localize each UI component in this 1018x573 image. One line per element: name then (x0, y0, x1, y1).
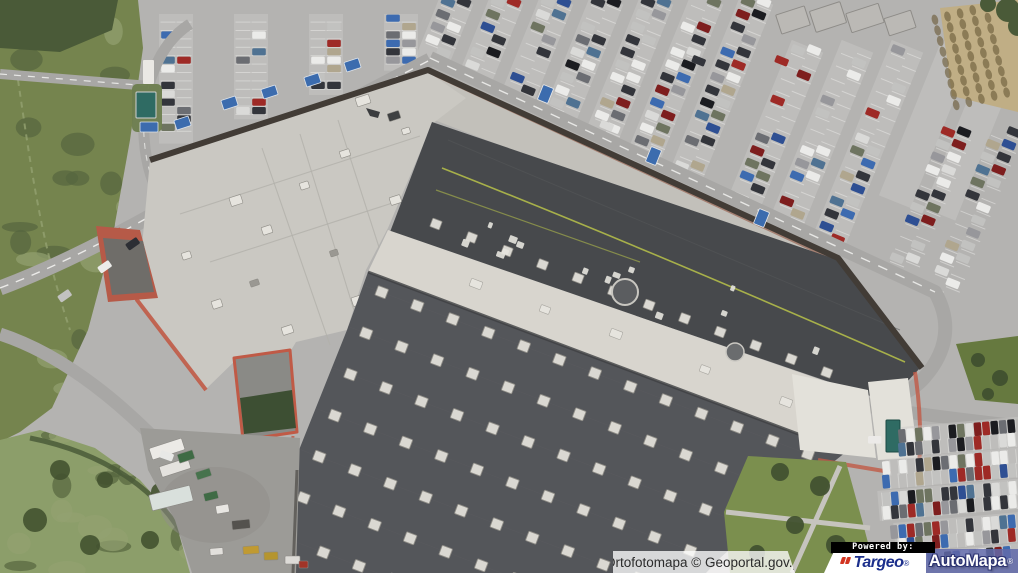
parked-car (958, 485, 967, 499)
parked-car (923, 522, 932, 536)
stall-line (327, 80, 342, 81)
parked-car (932, 456, 941, 470)
parked-car (386, 40, 400, 47)
parked-car (965, 423, 974, 437)
parked-car (1008, 494, 1017, 508)
stall-line (177, 89, 192, 90)
parked-car (965, 532, 974, 546)
parked-car (327, 48, 341, 55)
grass-blob (4, 561, 36, 571)
tree (982, 388, 994, 400)
parked-car (907, 503, 916, 517)
parked-car (402, 40, 416, 47)
parked-car (915, 523, 924, 537)
parked-car (1007, 528, 1016, 542)
stall-line (177, 72, 192, 73)
parked-car (999, 450, 1008, 464)
parked-car (252, 99, 266, 106)
parked-car (948, 424, 957, 438)
parked-car (891, 505, 900, 519)
roof-vent-circle (612, 279, 638, 305)
attribution-text: Ortofotomapa © Geoportal.gov.pl (605, 555, 803, 570)
parked-car (966, 467, 975, 481)
tree (771, 463, 789, 481)
parked-car (982, 517, 991, 531)
stall-line (252, 22, 267, 23)
car-on-road (868, 436, 881, 444)
parked-car (966, 485, 975, 499)
stall-line (252, 64, 267, 65)
parked-car (402, 48, 416, 55)
parked-car (915, 471, 924, 485)
parked-car (898, 524, 907, 538)
stall-line (236, 72, 251, 73)
parked-car (949, 533, 958, 547)
stall-line (252, 80, 267, 81)
parked-car (965, 518, 974, 532)
parked-car (177, 107, 191, 114)
entrance-canopy (886, 420, 900, 452)
parked-car (958, 499, 967, 513)
parked-car (327, 23, 341, 30)
stall-line (311, 55, 326, 56)
grass-blob (100, 171, 122, 195)
parked-car (983, 452, 992, 466)
parked-car (990, 421, 999, 435)
stall-line (252, 30, 267, 31)
grass-blob (7, 533, 31, 555)
stall-line (161, 114, 176, 115)
stall-line (161, 22, 176, 23)
tree (141, 531, 159, 549)
parked-car (899, 504, 908, 518)
parked-car (161, 124, 175, 131)
parked-car (327, 82, 341, 89)
parked-car (933, 501, 942, 515)
automapa-logo[interactable]: AutoMapa ® (924, 549, 1018, 573)
tree (971, 353, 985, 367)
parked-car (991, 496, 1000, 510)
parked-car (999, 464, 1008, 478)
parked-car (386, 57, 400, 64)
grass-blob (16, 117, 42, 137)
stall-line (402, 22, 417, 23)
stall-line (252, 72, 267, 73)
parked-car (941, 456, 950, 470)
yard-container (210, 548, 223, 556)
tree (50, 460, 70, 480)
parked-car (975, 484, 984, 498)
parked-car (999, 420, 1008, 434)
stall-line (236, 22, 251, 23)
parked-car (906, 428, 915, 442)
parked-car (916, 503, 925, 517)
powered-by-label: Powered by: (831, 542, 935, 553)
parked-car (899, 491, 908, 505)
parked-car (882, 492, 891, 506)
parked-car (327, 57, 341, 64)
stall-line (236, 89, 251, 90)
parked-car (931, 426, 940, 440)
parked-car (923, 427, 932, 441)
attribution-bar: Ortofotomapa © Geoportal.gov.pl (613, 551, 795, 573)
parked-car (386, 15, 400, 22)
stall-line (161, 80, 176, 81)
stall-line (236, 55, 251, 56)
parked-car (991, 516, 1000, 530)
parked-car (882, 506, 891, 520)
parked-car (890, 525, 899, 539)
parked-car (974, 453, 983, 467)
parked-car (402, 31, 416, 38)
targeo-logo[interactable]: Targeo ® (824, 553, 926, 573)
parked-car (999, 433, 1008, 447)
parked-car (957, 454, 966, 468)
parked-car (1007, 514, 1016, 528)
stall-line (311, 30, 326, 31)
parked-car (1008, 481, 1017, 495)
parked-car (991, 451, 1000, 465)
parked-car (161, 90, 175, 97)
parked-car (974, 531, 983, 545)
parked-car (177, 57, 191, 64)
parked-car (327, 40, 341, 47)
parked-car (940, 520, 949, 534)
parked-car (983, 483, 992, 497)
parked-car (899, 459, 908, 473)
parked-car (915, 441, 924, 455)
parked-car (1008, 463, 1017, 477)
parked-car (1000, 482, 1009, 496)
targeo-registered-mark: ® (903, 559, 909, 568)
parked-car (999, 515, 1008, 529)
stall-line (327, 38, 342, 39)
stall-line (386, 30, 401, 31)
yard-container (285, 556, 300, 564)
parked-car (932, 521, 941, 535)
parked-car (966, 453, 975, 467)
stall-line (177, 106, 192, 107)
parked-car (949, 500, 958, 514)
parked-car (1007, 419, 1016, 433)
stall-line (327, 22, 342, 23)
parked-car (311, 57, 325, 64)
stall-line (236, 80, 251, 81)
screenshot-root: Ortofotomapa © Geoportal.gov.pl Powered … (0, 0, 1018, 573)
grass-blob (51, 499, 73, 522)
stall-line (177, 47, 192, 48)
parked-car (898, 443, 907, 457)
automapa-registered-mark: ® (1007, 557, 1013, 566)
yard-container (299, 561, 308, 568)
stall-line (311, 47, 326, 48)
stall-line (177, 80, 192, 81)
parked-car (882, 475, 891, 489)
parked-car (915, 427, 924, 441)
parked-car (982, 421, 991, 435)
stall-line (236, 38, 251, 39)
parked-car (882, 461, 891, 475)
parked-car (983, 465, 992, 479)
parked-car (966, 498, 975, 512)
parked-car (915, 458, 924, 472)
stall-line (177, 55, 192, 56)
tree (992, 370, 1008, 386)
parked-car (161, 65, 175, 72)
cart-shelter (140, 122, 158, 132)
parked-car (957, 519, 966, 533)
parked-car (948, 438, 957, 452)
targeo-wordmark: Targeo (854, 553, 904, 573)
stall-line (236, 97, 251, 98)
parked-car (891, 491, 900, 505)
tree (810, 476, 830, 496)
stall-line (311, 22, 326, 23)
parked-car (991, 482, 1000, 496)
yard-container (232, 519, 251, 530)
parked-car (402, 23, 416, 30)
parked-car (973, 436, 982, 450)
parked-car (898, 429, 907, 443)
tree (97, 472, 113, 488)
parked-car (386, 48, 400, 55)
stall-line (311, 38, 326, 39)
parked-car (252, 48, 266, 55)
parked-car (974, 466, 983, 480)
parked-car (327, 65, 341, 72)
parked-car (932, 470, 941, 484)
tree (23, 508, 47, 532)
parked-car (907, 523, 916, 537)
parked-car (236, 57, 250, 64)
parked-car (983, 497, 992, 511)
roof-vent-circle (726, 343, 744, 361)
parked-car (982, 530, 991, 544)
stall-line (252, 47, 267, 48)
grass-blob (10, 230, 31, 255)
targeo-quote-icon (841, 557, 852, 564)
parked-car (965, 436, 974, 450)
yard-container (243, 545, 260, 554)
parked-car (252, 31, 266, 38)
parked-car (991, 465, 1000, 479)
parked-car (236, 107, 250, 114)
aerial-photo (0, 0, 1018, 573)
parked-car (931, 439, 940, 453)
stall-line (236, 30, 251, 31)
parked-car (940, 534, 949, 548)
stall-line (177, 131, 192, 132)
parked-car (941, 487, 950, 501)
parked-car (949, 455, 958, 469)
parked-car (906, 442, 915, 456)
parked-car (1007, 433, 1016, 447)
parked-car (941, 500, 950, 514)
parked-car (949, 486, 958, 500)
parked-car (957, 437, 966, 451)
stall-line (161, 122, 176, 123)
parked-car (923, 440, 932, 454)
parked-car (907, 490, 916, 504)
cart-shelter (136, 92, 156, 118)
automapa-wordmark: AutoMapa (929, 552, 1006, 571)
parked-car (161, 82, 175, 89)
tree (80, 535, 100, 555)
parked-car (949, 468, 958, 482)
parked-car (161, 99, 175, 106)
grass-blob (10, 48, 42, 71)
parked-car (973, 422, 982, 436)
parked-car (252, 107, 266, 114)
grass-blob (61, 133, 95, 156)
stall-line (236, 47, 251, 48)
parked-car (916, 489, 925, 503)
parked-car (957, 468, 966, 482)
parked-car (924, 457, 933, 471)
yard-container (264, 552, 278, 560)
stall-line (177, 97, 192, 98)
tree (786, 516, 804, 534)
parked-car (924, 488, 933, 502)
parked-car (1000, 495, 1009, 509)
parked-car (957, 424, 966, 438)
parked-car (991, 529, 1000, 543)
parked-van (143, 60, 154, 84)
parked-car (386, 31, 400, 38)
grass-blob (52, 170, 78, 185)
